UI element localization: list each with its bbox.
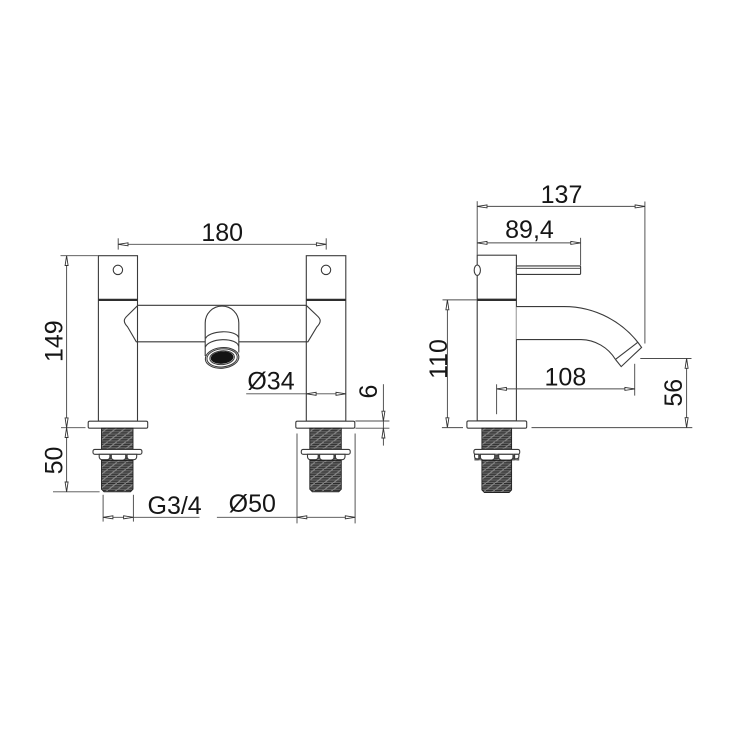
svg-text:137: 137: [541, 181, 583, 209]
svg-text:89,4: 89,4: [505, 216, 554, 244]
svg-text:6: 6: [355, 385, 383, 399]
svg-text:50: 50: [41, 447, 69, 475]
svg-text:180: 180: [201, 219, 243, 247]
svg-text:Ø34: Ø34: [247, 368, 294, 396]
svg-text:56: 56: [660, 379, 688, 407]
svg-text:G3/4: G3/4: [148, 492, 202, 520]
svg-text:149: 149: [41, 320, 69, 362]
svg-text:110: 110: [425, 339, 453, 379]
svg-text:Ø50: Ø50: [229, 490, 276, 518]
svg-text:108: 108: [545, 363, 587, 391]
